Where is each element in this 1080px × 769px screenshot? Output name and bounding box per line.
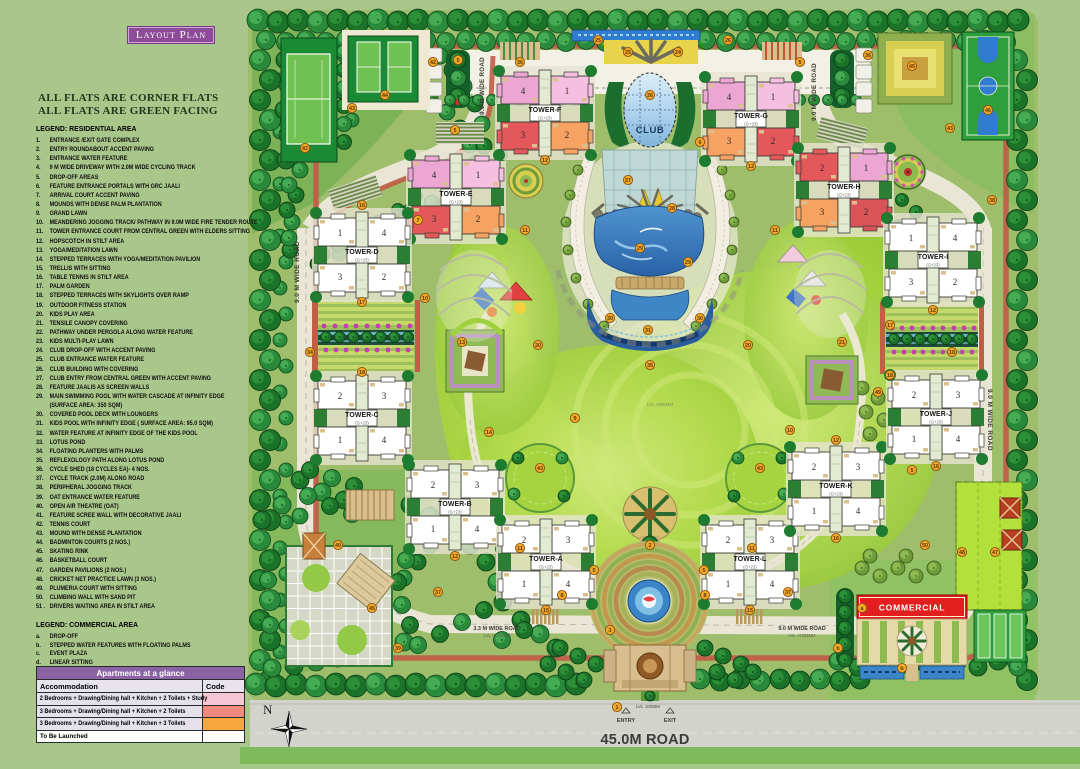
svg-text:TOWER-F: TOWER-F — [529, 107, 562, 114]
svg-text:3: 3 — [521, 130, 526, 140]
svg-text:1: 1 — [476, 170, 481, 180]
svg-text:TOWER-H: TOWER-H — [827, 184, 861, 191]
svg-text:6: 6 — [699, 140, 702, 146]
svg-text:3: 3 — [770, 535, 775, 545]
svg-text:5: 5 — [911, 468, 914, 474]
svg-text:4: 4 — [382, 435, 387, 445]
svg-text:2: 2 — [476, 214, 481, 224]
svg-text:TOWER-A: TOWER-A — [529, 556, 563, 563]
svg-text:14: 14 — [486, 430, 492, 436]
svg-text:(G+23): (G+23) — [355, 258, 369, 263]
svg-text:3: 3 — [956, 390, 961, 400]
svg-text:2: 2 — [953, 277, 958, 287]
svg-text:(G+23): (G+23) — [743, 565, 757, 570]
svg-text:15: 15 — [747, 608, 753, 614]
svg-text:TOWER-B: TOWER-B — [438, 501, 472, 508]
svg-text:4: 4 — [953, 233, 958, 243]
svg-text:25: 25 — [625, 50, 631, 56]
svg-text:1: 1 — [431, 524, 436, 534]
svg-text:49: 49 — [875, 390, 881, 396]
svg-text:37: 37 — [785, 590, 791, 596]
svg-text:3: 3 — [727, 136, 732, 146]
svg-text:21: 21 — [839, 340, 845, 346]
svg-text:4: 4 — [432, 170, 437, 180]
svg-text:2: 2 — [522, 535, 527, 545]
svg-text:3: 3 — [432, 214, 437, 224]
svg-text:5: 5 — [703, 568, 706, 574]
svg-text:43: 43 — [349, 106, 355, 112]
svg-text:29: 29 — [637, 246, 643, 252]
svg-text:36: 36 — [517, 60, 523, 66]
svg-text:2: 2 — [565, 130, 570, 140]
svg-text:25: 25 — [595, 38, 601, 44]
svg-text:47: 47 — [992, 550, 998, 556]
svg-text:2: 2 — [771, 136, 776, 146]
svg-text:3: 3 — [609, 628, 612, 634]
svg-text:2: 2 — [431, 480, 436, 490]
svg-text:1: 1 — [338, 435, 343, 445]
svg-text:(G+23): (G+23) — [929, 420, 943, 425]
svg-text:12: 12 — [833, 438, 839, 444]
svg-text:1: 1 — [812, 506, 817, 516]
svg-text:ENTRY: ENTRY — [617, 718, 636, 724]
svg-text:4: 4 — [382, 228, 387, 238]
svg-text:(G+23): (G+23) — [355, 421, 369, 426]
svg-text:9.0 M WIDE ROAD: 9.0 M WIDE ROAD — [986, 389, 993, 451]
svg-text:5: 5 — [454, 128, 457, 134]
svg-text:5: 5 — [457, 58, 460, 64]
svg-text:N: N — [263, 702, 273, 717]
svg-text:2: 2 — [382, 272, 387, 282]
svg-text:30: 30 — [697, 316, 703, 322]
svg-text:13: 13 — [459, 340, 465, 346]
svg-text:46: 46 — [985, 108, 991, 114]
svg-text:4: 4 — [566, 579, 571, 589]
svg-text:(G+23): (G+23) — [837, 193, 851, 198]
svg-text:(G+23): (G+23) — [539, 565, 553, 570]
svg-text:(G+23): (G+23) — [538, 116, 552, 121]
svg-text:18: 18 — [887, 373, 893, 379]
svg-text:26: 26 — [647, 93, 653, 99]
svg-text:(G+23): (G+23) — [829, 492, 843, 497]
svg-text:24: 24 — [675, 50, 681, 56]
svg-text:16: 16 — [359, 203, 365, 209]
svg-text:38: 38 — [989, 198, 995, 204]
svg-text:(G+23): (G+23) — [926, 263, 940, 268]
svg-text:(G+23): (G+23) — [449, 200, 463, 205]
svg-text:40: 40 — [335, 543, 341, 549]
svg-text:17: 17 — [887, 323, 893, 329]
svg-text:4: 4 — [475, 524, 480, 534]
svg-text:29: 29 — [685, 260, 691, 266]
svg-text:1: 1 — [909, 233, 914, 243]
svg-text:5: 5 — [799, 60, 802, 66]
svg-text:20: 20 — [745, 343, 751, 349]
svg-text:1: 1 — [338, 228, 343, 238]
svg-text:3: 3 — [566, 535, 571, 545]
svg-text:2: 2 — [726, 535, 731, 545]
svg-text:12: 12 — [930, 308, 936, 314]
svg-text:16: 16 — [833, 536, 839, 542]
svg-text:10: 10 — [422, 296, 428, 302]
svg-text:4: 4 — [521, 86, 526, 96]
svg-text:TOWER-E: TOWER-E — [439, 191, 472, 198]
svg-text:LVL +900MM: LVL +900MM — [647, 402, 674, 407]
svg-text:43: 43 — [537, 466, 543, 472]
svg-text:TOWER-G: TOWER-G — [734, 113, 768, 120]
svg-text:3: 3 — [820, 207, 825, 217]
svg-text:TOWER-C: TOWER-C — [345, 412, 379, 419]
svg-text:2: 2 — [649, 543, 652, 549]
svg-text:28: 28 — [669, 206, 675, 212]
svg-text:3: 3 — [382, 391, 387, 401]
svg-text:1: 1 — [726, 579, 731, 589]
svg-text:4: 4 — [856, 506, 861, 516]
svg-text:50: 50 — [922, 543, 928, 549]
svg-text:35: 35 — [647, 363, 653, 369]
svg-text:42: 42 — [430, 60, 436, 66]
svg-text:15: 15 — [543, 608, 549, 614]
svg-text:1: 1 — [864, 163, 869, 173]
svg-text:10: 10 — [787, 428, 793, 434]
svg-text:TOWER-I: TOWER-I — [918, 254, 948, 261]
svg-text:4: 4 — [956, 434, 961, 444]
svg-text:9.0 M WIDE ROAD: 9.0 M WIDE ROAD — [294, 241, 301, 303]
svg-text:43: 43 — [757, 466, 763, 472]
svg-text:2: 2 — [912, 390, 917, 400]
svg-text:COMMERCIAL: COMMERCIAL — [879, 603, 946, 613]
svg-text:11: 11 — [772, 228, 778, 234]
svg-text:2: 2 — [820, 163, 825, 173]
svg-text:43: 43 — [947, 126, 953, 132]
svg-text:17: 17 — [359, 300, 365, 306]
svg-text:45.0M ROAD: 45.0M ROAD — [600, 732, 689, 748]
svg-text:39: 39 — [395, 646, 401, 652]
svg-text:8: 8 — [704, 593, 707, 599]
svg-text:37: 37 — [435, 590, 441, 596]
svg-text:1: 1 — [522, 579, 527, 589]
svg-text:(G+23): (G+23) — [448, 510, 462, 515]
svg-text:4: 4 — [770, 579, 775, 589]
svg-text:45: 45 — [909, 64, 915, 70]
svg-text:11: 11 — [517, 546, 523, 552]
svg-text:11: 11 — [522, 228, 528, 234]
svg-text:42: 42 — [302, 146, 308, 152]
svg-text:27: 27 — [625, 178, 631, 184]
svg-text:TOWER-D: TOWER-D — [345, 249, 379, 256]
svg-text:7: 7 — [417, 218, 420, 224]
svg-text:1: 1 — [565, 86, 570, 96]
svg-text:3: 3 — [338, 272, 343, 282]
svg-text:16: 16 — [933, 464, 939, 470]
svg-text:CLUB: CLUB — [636, 125, 664, 136]
svg-text:11: 11 — [749, 546, 755, 552]
svg-text:18: 18 — [949, 350, 955, 356]
svg-text:4: 4 — [727, 92, 732, 102]
svg-text:LVL +2333MM: LVL +2333MM — [484, 633, 511, 638]
svg-text:20: 20 — [535, 343, 541, 349]
svg-text:LVL +2333MM: LVL +2333MM — [789, 633, 816, 638]
svg-text:TOWER-L: TOWER-L — [734, 556, 767, 563]
svg-text:9.0 M WIDE ROAD: 9.0 M WIDE ROAD — [811, 63, 818, 121]
svg-text:9: 9 — [574, 416, 577, 422]
svg-text:3: 3 — [909, 277, 914, 287]
svg-text:8: 8 — [561, 593, 564, 599]
svg-text:3: 3 — [856, 462, 861, 472]
svg-text:2: 2 — [338, 391, 343, 401]
svg-text:9.0 M WIDE ROAD: 9.0 M WIDE ROAD — [479, 57, 486, 115]
svg-text:1: 1 — [771, 92, 776, 102]
svg-text:1: 1 — [616, 705, 619, 711]
svg-text:3: 3 — [475, 480, 480, 490]
svg-text:2: 2 — [864, 207, 869, 217]
svg-text:18: 18 — [359, 370, 365, 376]
svg-text:2: 2 — [812, 462, 817, 472]
svg-text:TOWER-J: TOWER-J — [920, 411, 952, 418]
svg-text:31: 31 — [645, 328, 651, 334]
svg-text:45: 45 — [369, 606, 375, 612]
svg-text:36: 36 — [865, 53, 871, 59]
svg-text:TOWER-K: TOWER-K — [819, 483, 853, 490]
svg-text:12: 12 — [452, 554, 458, 560]
svg-text:48: 48 — [959, 550, 965, 556]
svg-text:12: 12 — [748, 164, 754, 170]
svg-text:30: 30 — [607, 316, 613, 322]
svg-text:34: 34 — [307, 350, 313, 356]
svg-text:12: 12 — [542, 158, 548, 164]
svg-text:44: 44 — [382, 93, 388, 99]
svg-text:1: 1 — [912, 434, 917, 444]
svg-text:9.0 M WIDE ROAD: 9.0 M WIDE ROAD — [778, 626, 825, 632]
svg-text:3.3 M WIDE ROAD: 3.3 M WIDE ROAD — [473, 626, 520, 632]
svg-text:5: 5 — [593, 568, 596, 574]
svg-text:LVL 100MM: LVL 100MM — [636, 704, 660, 709]
svg-text:26: 26 — [725, 38, 731, 44]
svg-text:(G+23): (G+23) — [744, 122, 758, 127]
svg-text:EXIT: EXIT — [664, 718, 677, 724]
